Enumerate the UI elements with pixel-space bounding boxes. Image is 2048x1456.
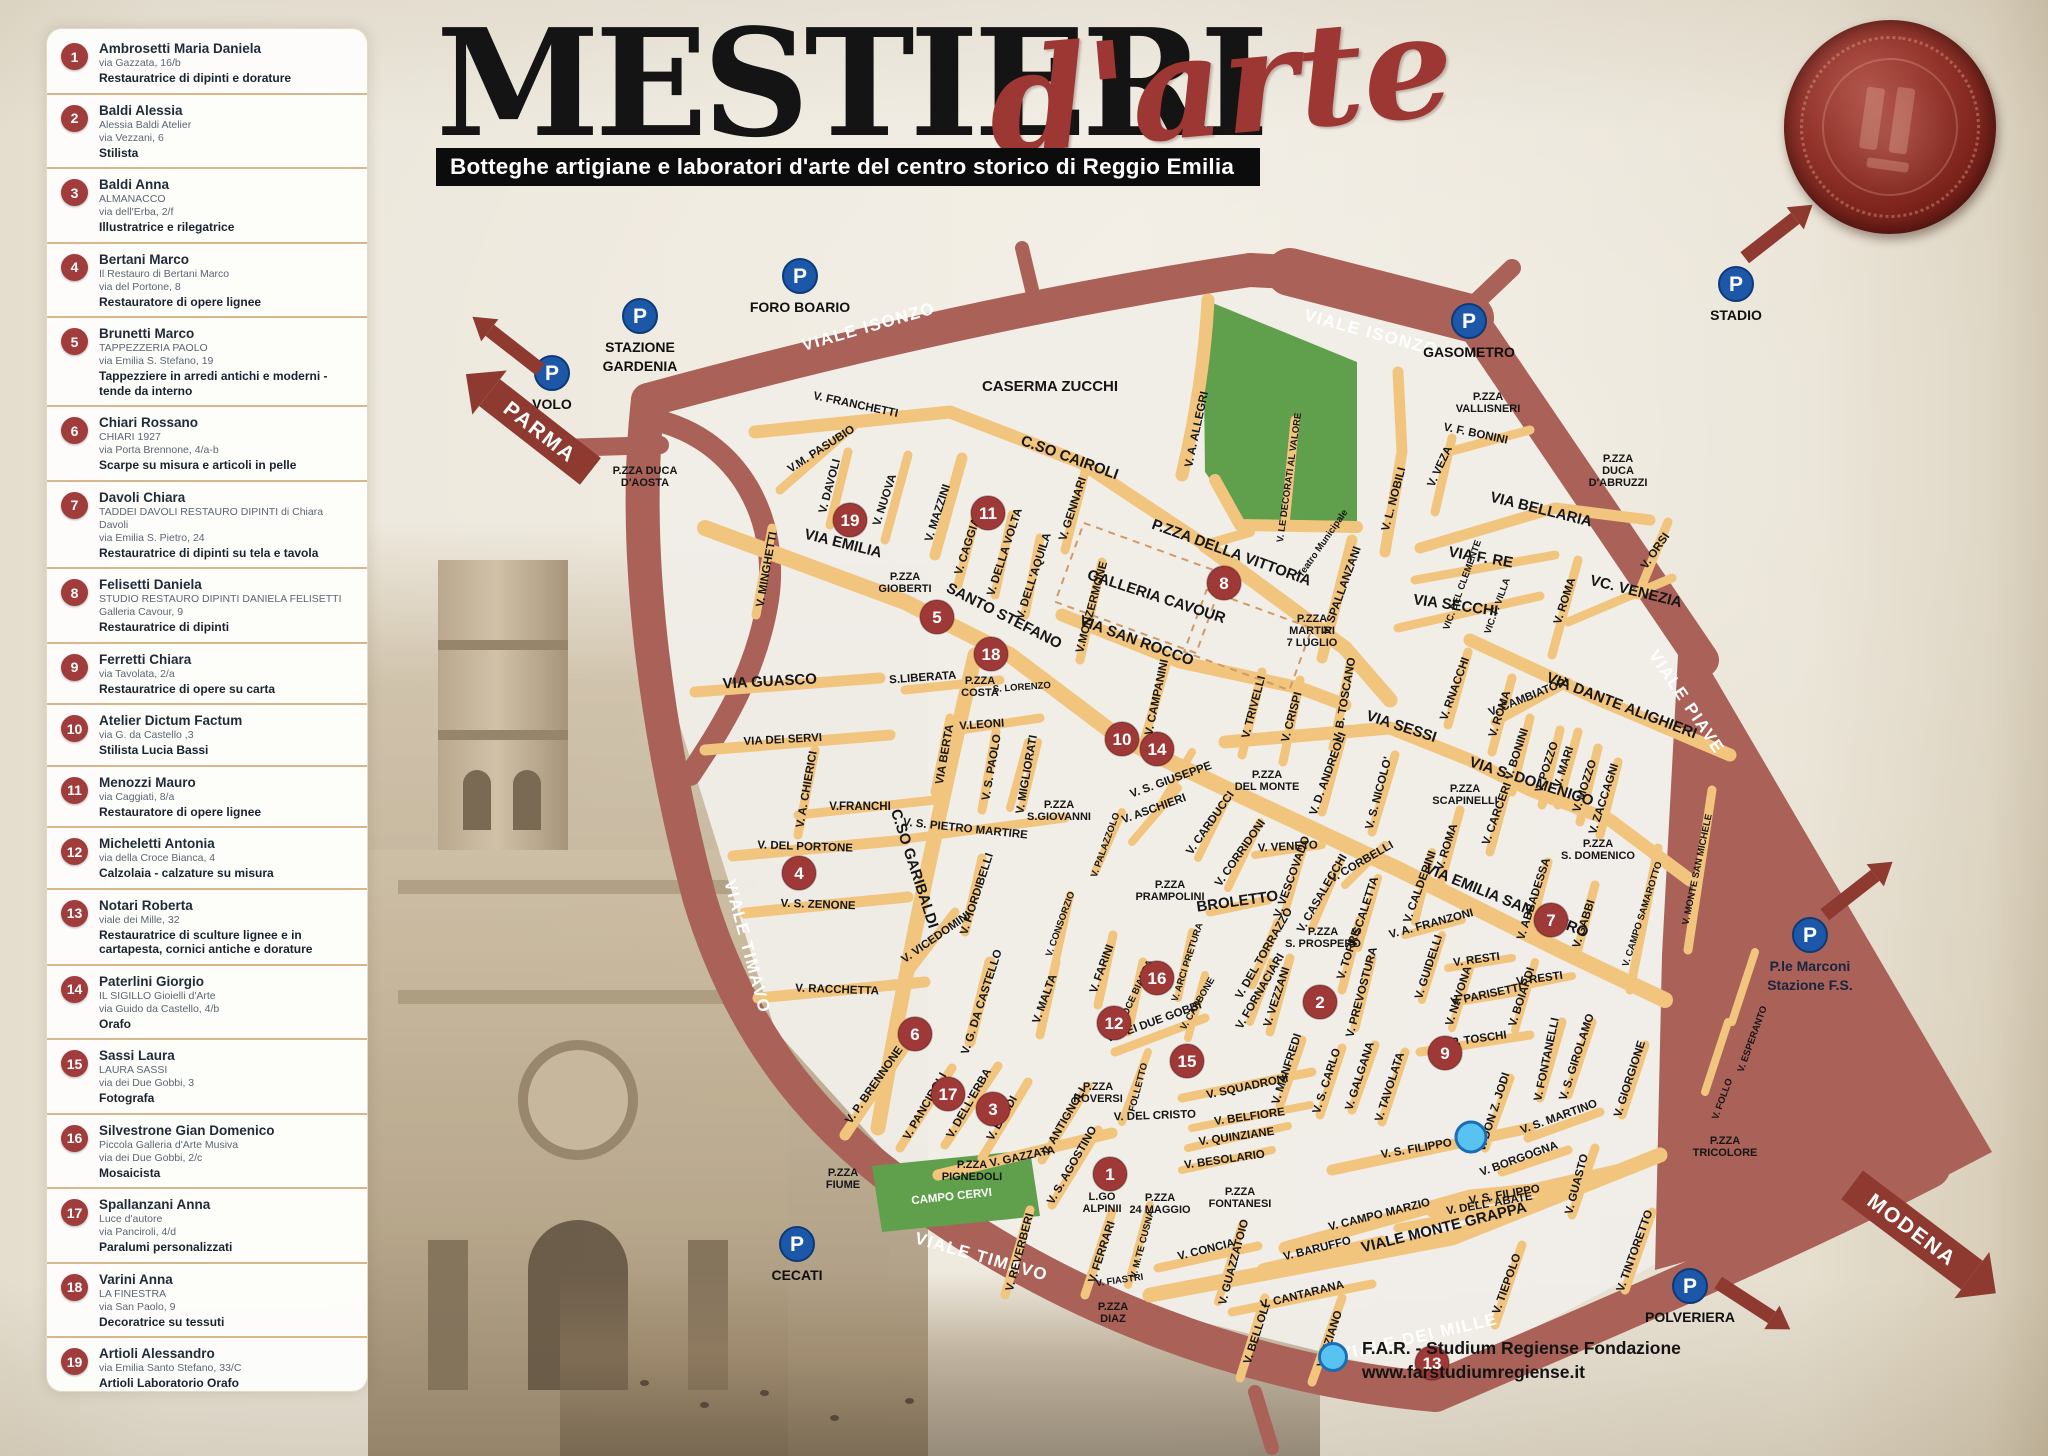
entry-profession: Restauratrice di sculture lignee e in ca… xyxy=(99,928,355,957)
svg-text:6: 6 xyxy=(910,1025,919,1044)
parking-stazione-gardenia: PSTAZIONEGARDENIA xyxy=(603,299,678,374)
entry-profession: Mosaicista xyxy=(99,1166,355,1181)
entry-name: Artioli Alessandro xyxy=(99,1346,355,1362)
svg-text:7: 7 xyxy=(1546,911,1555,930)
svg-text:P: P xyxy=(793,265,807,288)
map-marker-8: 8 xyxy=(1207,566,1241,600)
map-marker-2: 2 xyxy=(1303,985,1337,1019)
svg-text:P.ZZA: P.ZZA xyxy=(957,1159,987,1171)
entry-address: TADDEI DAVOLI RESTAURO DIPINTI di Chiara… xyxy=(99,506,355,532)
entry-name: Brunetti Marco xyxy=(99,326,355,342)
svg-text:P.ZZA: P.ZZA xyxy=(1252,769,1282,781)
svg-text:P.ZZA: P.ZZA xyxy=(1308,926,1338,938)
entry-name: Menozzi Mauro xyxy=(99,775,355,791)
svg-text:S. PROSPERO: S. PROSPERO xyxy=(1285,938,1361,950)
svg-text:19: 19 xyxy=(841,511,860,530)
entry-address: via Panciroli, 4/d xyxy=(99,1226,355,1239)
svg-text:11: 11 xyxy=(979,504,997,523)
street-label: V.FRANCHI xyxy=(829,801,891,813)
parking-foro-boario: PFORO BOARIO xyxy=(750,259,850,315)
svg-text:P: P xyxy=(1729,273,1743,296)
map-marker-5: 5 xyxy=(920,600,954,634)
map-marker-11: 11 xyxy=(971,496,1005,530)
svg-text:VALLISNERI: VALLISNERI xyxy=(1456,403,1521,415)
directory-entry-5: 5 Brunetti Marco TAPPEZZERIA PAOLOvia Em… xyxy=(47,318,367,407)
map-marker-9: 9 xyxy=(1428,1036,1462,1070)
svg-text:24 MAGGIO: 24 MAGGIO xyxy=(1129,1204,1191,1216)
svg-text:P.ZZA: P.ZZA xyxy=(1450,783,1480,795)
entry-profession: Illustratrice e rilegatrice xyxy=(99,220,355,235)
svg-text:CECATI: CECATI xyxy=(771,1267,822,1283)
svg-text:P: P xyxy=(1683,1275,1697,1298)
directory-entry-6: 6 Chiari Rossano CHIARI 1927via Porta Br… xyxy=(47,407,367,482)
map-marker-14: 14 xyxy=(1140,732,1174,766)
svg-text:P.ZZA: P.ZZA xyxy=(1083,1081,1113,1093)
entry-name: Silvestrone Gian Domenico xyxy=(99,1123,355,1139)
svg-text:P.ZZA: P.ZZA xyxy=(1710,1135,1740,1147)
artisan-directory: 1 Ambrosetti Maria Daniela via Gazzata, … xyxy=(46,28,368,1392)
directory-entry-17: 17 Spallanzani Anna Luce d'autorevia Pan… xyxy=(47,1189,367,1264)
piazza-label: P.ZZA DUCAD'AOSTA xyxy=(613,465,678,489)
svg-text:15: 15 xyxy=(1178,1052,1197,1071)
entry-address: via Emilia S. Stefano, 19 xyxy=(99,355,355,368)
entry-number-badge: 15 xyxy=(61,1050,88,1077)
svg-text:2: 2 xyxy=(1315,993,1324,1012)
svg-text:SCAPINELLI: SCAPINELLI xyxy=(1432,795,1497,807)
entry-profession: Restauratrice di dipinti su tela e tavol… xyxy=(99,546,355,561)
subtitle-bar: Botteghe artigiane e laboratori d'arte d… xyxy=(436,148,1260,186)
map-marker-6: 6 xyxy=(898,1017,932,1051)
svg-text:D'AOSTA: D'AOSTA xyxy=(621,477,669,489)
entry-profession: Restauratrice di dipinti xyxy=(99,620,355,635)
entry-address: via dei Due Gobbi, 3 xyxy=(99,1077,355,1090)
entry-name: Davoli Chiara xyxy=(99,490,355,506)
entry-address: LAURA SASSI xyxy=(99,1064,355,1077)
entry-profession: Stilista Lucia Bassi xyxy=(99,743,355,758)
svg-text:FONTANESI: FONTANESI xyxy=(1209,1198,1272,1210)
entry-number-badge: 11 xyxy=(61,777,88,804)
entry-name: Felisetti Daniela xyxy=(99,577,355,593)
map-marker-15: 15 xyxy=(1170,1044,1204,1078)
map-marker-17: 17 xyxy=(931,1077,965,1111)
entry-profession: Paralumi personalizzati xyxy=(99,1240,355,1255)
directory-entry-7: 7 Davoli Chiara TADDEI DAVOLI RESTAURO D… xyxy=(47,482,367,570)
svg-text:18: 18 xyxy=(982,645,1001,664)
entry-address: ALMANACCO xyxy=(99,193,355,206)
entry-profession: Restauratrice di opere su carta xyxy=(99,682,355,697)
entry-profession: Restauratore di opere lignee xyxy=(99,805,355,820)
legend-org: F.A.R. - Studium Regiense Fondazione xyxy=(1362,1336,1681,1360)
small-direction-arrow xyxy=(1711,1271,1798,1341)
entry-number-badge: 6 xyxy=(61,417,88,444)
map-marker-1: 1 xyxy=(1093,1157,1127,1191)
entry-number-badge: 18 xyxy=(61,1274,88,1301)
svg-text:7 LUGLIO: 7 LUGLIO xyxy=(1287,637,1338,649)
entry-address: via San Paolo, 9 xyxy=(99,1301,355,1314)
entry-number-badge: 1 xyxy=(61,43,88,70)
svg-text:17: 17 xyxy=(939,1085,958,1104)
svg-text:D'ABRUZZI: D'ABRUZZI xyxy=(1589,477,1648,489)
svg-text:P.ZZA: P.ZZA xyxy=(1473,391,1503,403)
svg-text:DUCA: DUCA xyxy=(1602,465,1634,477)
entry-address: CHIARI 1927 xyxy=(99,431,355,444)
svg-text:P.ZZA: P.ZZA xyxy=(1155,879,1185,891)
entry-profession: Calzolaia - calzature su misura xyxy=(99,866,355,881)
directory-entry-19: 19 Artioli Alessandro via Emilia Santo S… xyxy=(47,1338,367,1398)
entry-name: Baldi Alessia xyxy=(99,103,355,119)
svg-text:P.ZZA: P.ZZA xyxy=(890,571,920,583)
svg-text:P: P xyxy=(545,362,559,385)
entry-number-badge: 4 xyxy=(61,254,88,281)
svg-text:TRICOLORE: TRICOLORE xyxy=(1693,1147,1758,1159)
svg-text:L.GO: L.GO xyxy=(1089,1191,1116,1203)
entry-address: STUDIO RESTAURO DIPINTI DANIELA FELISETT… xyxy=(99,593,355,606)
entry-name: Micheletti Antonia xyxy=(99,836,355,852)
entry-number-badge: 9 xyxy=(61,654,88,681)
svg-text:1: 1 xyxy=(1105,1165,1114,1184)
piazza-label: P.ZZAFIUME xyxy=(826,1167,860,1191)
svg-text:12: 12 xyxy=(1105,1014,1124,1033)
entry-number-badge: 8 xyxy=(61,579,88,606)
entry-number-badge: 12 xyxy=(61,838,88,865)
entry-address: via dei Due Gobbi, 2/c xyxy=(99,1152,355,1165)
piazza-label: P.ZZACOSTA xyxy=(961,675,999,699)
entry-name: Varini Anna xyxy=(99,1272,355,1288)
svg-text:GASOMETRO: GASOMETRO xyxy=(1423,344,1515,360)
entry-address: LA FINESTRA xyxy=(99,1288,355,1301)
map-marker-4: 4 xyxy=(782,856,816,890)
entry-address: via Porta Brennone, 4/a-b xyxy=(99,444,355,457)
entry-address: TAPPEZZERIA PAOLO xyxy=(99,342,355,355)
entry-address: Piccola Galleria d'Arte Musiva xyxy=(99,1139,355,1152)
parking-stadio: PSTADIO xyxy=(1710,267,1762,323)
svg-text:GARDENIA: GARDENIA xyxy=(603,358,678,374)
entry-address: via del Portone, 8 xyxy=(99,281,355,294)
entry-address: Luce d'autore xyxy=(99,1213,355,1226)
entry-address: via Gazzata, 16/b xyxy=(99,57,355,70)
entry-address: via Caggiati, 8/a xyxy=(99,791,355,804)
directory-entry-13: 13 Notari Roberta viale dei Mille, 32Res… xyxy=(47,890,367,966)
entry-address: via dell'Erba, 2/f xyxy=(99,206,355,219)
entry-profession: Restauratrice di dipinti e dorature xyxy=(99,71,355,86)
directory-entry-16: 16 Silvestrone Gian Domenico Piccola Gal… xyxy=(47,1115,367,1190)
svg-text:P: P xyxy=(1803,924,1817,947)
entry-profession: Tappezziere in arredi antichi e moderni … xyxy=(99,369,355,398)
directory-entry-11: 11 Menozzi Mauro via Caggiati, 8/aRestau… xyxy=(47,767,367,829)
entry-address: via Emilia Santo Stefano, 33/C xyxy=(99,1362,355,1375)
entry-address: via Tavolata, 2/a xyxy=(99,668,355,681)
entry-name: Spallanzani Anna xyxy=(99,1197,355,1213)
svg-text:P: P xyxy=(1462,310,1476,333)
entry-name: Ferretti Chiara xyxy=(99,652,355,668)
directory-entry-9: 9 Ferretti Chiara via Tavolata, 2/aResta… xyxy=(47,644,367,706)
entry-address: via Guido da Castello, 4/b xyxy=(99,1003,355,1016)
entry-number-badge: 5 xyxy=(61,328,88,355)
entry-name: Bertani Marco xyxy=(99,252,355,268)
svg-text:3: 3 xyxy=(988,1100,997,1119)
map-marker-18: 18 xyxy=(974,637,1008,671)
directory-entry-15: 15 Sassi Laura LAURA SASSIvia dei Due Go… xyxy=(47,1040,367,1115)
svg-text:P.ZZA: P.ZZA xyxy=(1297,613,1327,625)
svg-text:ROVERSI: ROVERSI xyxy=(1073,1093,1123,1105)
entry-name: Notari Roberta xyxy=(99,898,355,914)
directory-entry-2: 2 Baldi Alessia Alessia Baldi Ateliervia… xyxy=(47,95,367,170)
entry-address: via Vezzani, 6 xyxy=(99,132,355,145)
svg-text:9: 9 xyxy=(1440,1044,1449,1063)
entry-number-badge: 2 xyxy=(61,105,88,132)
entry-number-badge: 17 xyxy=(61,1199,88,1226)
entry-address: via della Croce Bianca, 4 xyxy=(99,852,355,865)
directory-entry-14: 14 Paterlini Giorgio IL SIGILLO Gioielli… xyxy=(47,966,367,1041)
svg-text:P.ZZA: P.ZZA xyxy=(1583,838,1613,850)
entry-profession: Decoratrice su tessuti xyxy=(99,1315,355,1330)
entry-address: via G. da Castello ,3 xyxy=(99,729,355,742)
street-label: CASERMA ZUCCHI xyxy=(982,378,1118,395)
svg-text:P.ZZA: P.ZZA xyxy=(1044,799,1074,811)
directory-entry-8: 8 Felisetti Daniela STUDIO RESTAURO DIPI… xyxy=(47,569,367,644)
svg-text:P.ZZA: P.ZZA xyxy=(965,675,995,687)
entry-profession: Artioli Laboratorio Orafo xyxy=(99,1376,355,1391)
svg-text:GIOBERTI: GIOBERTI xyxy=(878,583,931,595)
entry-address: Galleria Cavour, 9 xyxy=(99,606,355,619)
svg-text:16: 16 xyxy=(1148,969,1167,988)
svg-text:MARTIRI: MARTIRI xyxy=(1289,625,1335,637)
entry-number-badge: 13 xyxy=(61,900,88,927)
svg-text:S.GIOVANNI: S.GIOVANNI xyxy=(1027,811,1091,823)
svg-text:P.ZZA: P.ZZA xyxy=(1225,1186,1255,1198)
entry-number-badge: 7 xyxy=(61,492,88,519)
svg-text:P: P xyxy=(790,1233,804,1256)
entry-profession: Orafo xyxy=(99,1017,355,1032)
entry-number-badge: 19 xyxy=(61,1348,88,1375)
directory-entry-18: 18 Varini Anna LA FINESTRAvia San Paolo,… xyxy=(47,1264,367,1339)
entry-profession: Restauratore di opere lignee xyxy=(99,295,355,310)
small-direction-arrow xyxy=(1736,194,1821,269)
direction-arrow-parma: PARMA xyxy=(449,352,608,493)
far-legend-dot xyxy=(1318,1342,1348,1372)
entry-name: Sassi Laura xyxy=(99,1048,355,1064)
map-marker-7: 7 xyxy=(1534,903,1568,937)
directory-entry-10: 10 Atelier Dictum Factum via G. da Caste… xyxy=(47,705,367,767)
svg-text:P.ZZA: P.ZZA xyxy=(828,1167,858,1179)
entry-number-badge: 3 xyxy=(61,179,88,206)
svg-text:POLVERIERA: POLVERIERA xyxy=(1645,1309,1735,1325)
svg-text:ALPINII: ALPINII xyxy=(1082,1203,1121,1215)
svg-text:10: 10 xyxy=(1113,730,1132,749)
entry-name: Chiari Rossano xyxy=(99,415,355,431)
map-legend: F.A.R. - Studium Regiense Fondazione www… xyxy=(1318,1336,1681,1384)
svg-text:4: 4 xyxy=(794,864,804,883)
map-marker-10: 10 xyxy=(1105,722,1139,756)
map-marker-16: 16 xyxy=(1140,961,1174,995)
piazza-label: P.ZZADUCAD'ABRUZZI xyxy=(1589,453,1648,489)
svg-text:P.ZZA DUCA: P.ZZA DUCA xyxy=(613,465,678,477)
directory-entry-1: 1 Ambrosetti Maria Daniela via Gazzata, … xyxy=(47,33,367,95)
entry-name: Ambrosetti Maria Daniela xyxy=(99,41,355,57)
map-marker-12: 12 xyxy=(1097,1006,1131,1040)
entry-profession: Fotografa xyxy=(99,1091,355,1106)
entry-number-badge: 16 xyxy=(61,1125,88,1152)
svg-text:STAZIONE: STAZIONE xyxy=(605,339,675,355)
svg-text:PRAMPOLINI: PRAMPOLINI xyxy=(1135,891,1204,903)
svg-text:COSTA: COSTA xyxy=(961,687,999,699)
entry-address: viale dei Mille, 32 xyxy=(99,914,355,927)
svg-text:Stazione F.S.: Stazione F.S. xyxy=(1767,977,1853,993)
entry-profession: Stilista xyxy=(99,146,355,161)
svg-text:S. DOMENICO: S. DOMENICO xyxy=(1561,850,1635,862)
svg-text:5: 5 xyxy=(932,608,941,627)
entry-number-badge: 10 xyxy=(61,715,88,742)
piazza-label: P.ZZADIAZ xyxy=(1098,1301,1128,1325)
directory-entry-3: 3 Baldi Anna ALMANACCOvia dell'Erba, 2/f… xyxy=(47,169,367,244)
svg-text:STADIO: STADIO xyxy=(1710,307,1762,323)
svg-text:P: P xyxy=(633,305,647,328)
svg-text:P.ZZA: P.ZZA xyxy=(1145,1192,1175,1204)
entry-address: Il Restauro di Bertani Marco xyxy=(99,268,355,281)
entry-address: Alessia Baldi Atelier xyxy=(99,119,355,132)
entry-address: IL SIGILLO Gioielli d'Arte xyxy=(99,990,355,1003)
svg-text:P.ZZA: P.ZZA xyxy=(1603,453,1633,465)
directory-entry-12: 12 Micheletti Antonia via della Croce Bi… xyxy=(47,828,367,890)
svg-text:8: 8 xyxy=(1219,574,1228,593)
entry-profession: Scarpe su misura e articoli in pelle xyxy=(99,458,355,473)
entry-address: via Emilia S. Pietro, 24 xyxy=(99,532,355,545)
svg-text:P.ZZA: P.ZZA xyxy=(1098,1301,1128,1313)
entry-name: Baldi Anna xyxy=(99,177,355,193)
svg-text:FORO BOARIO: FORO BOARIO xyxy=(750,299,850,315)
directory-entry-4: 4 Bertani Marco Il Restauro di Bertani M… xyxy=(47,244,367,319)
svg-text:14: 14 xyxy=(1148,740,1167,759)
entry-name: Atelier Dictum Factum xyxy=(99,713,355,729)
legend-url: www.farstudiumregiense.it xyxy=(1362,1360,1681,1384)
parking-cecati: PCECATI xyxy=(771,1227,822,1283)
svg-text:DIAZ: DIAZ xyxy=(1100,1313,1126,1325)
far-location-dot xyxy=(1456,1122,1486,1152)
map-marker-3: 3 xyxy=(976,1092,1010,1126)
svg-text:P.le Marconi: P.le Marconi xyxy=(1770,958,1851,974)
small-direction-arrow xyxy=(464,306,549,381)
entry-number-badge: 14 xyxy=(61,976,88,1003)
map-marker-19: 19 xyxy=(833,503,867,537)
svg-text:FIUME: FIUME xyxy=(826,1179,860,1191)
svg-text:PIGNEDOLI: PIGNEDOLI xyxy=(942,1171,1003,1183)
svg-text:MODENA: MODENA xyxy=(1863,1190,1961,1272)
entry-name: Paterlini Giorgio xyxy=(99,974,355,990)
svg-text:DEL MONTE: DEL MONTE xyxy=(1235,781,1300,793)
